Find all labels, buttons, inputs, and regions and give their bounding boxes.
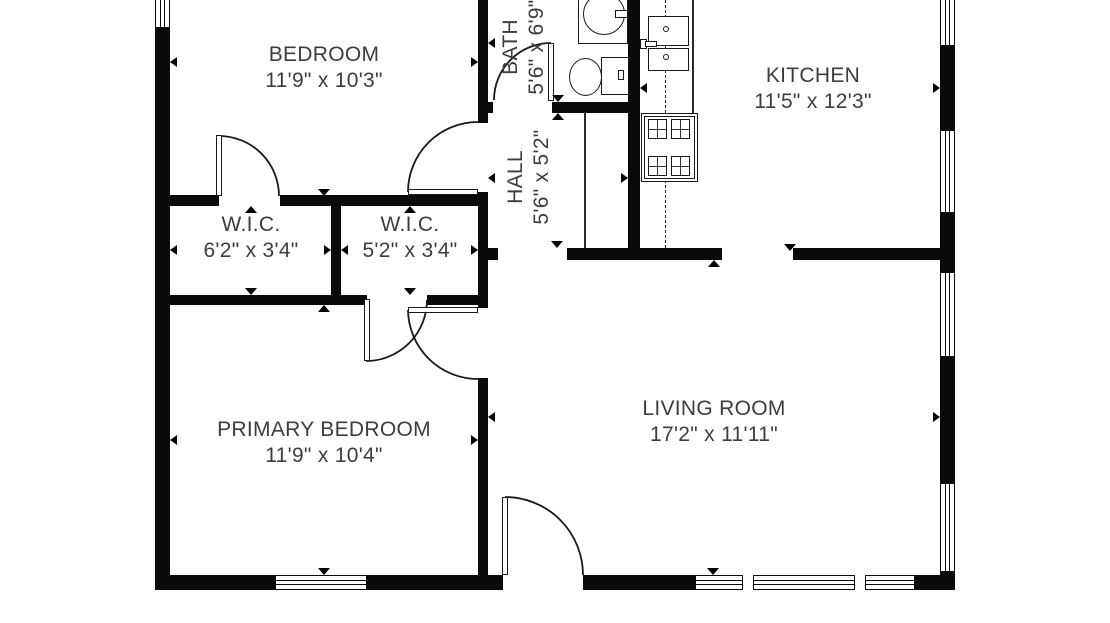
stove-burner-icon xyxy=(671,119,690,139)
sink-drain-icon xyxy=(663,54,669,60)
dimension-arrow-icon xyxy=(551,241,563,248)
wall-bedroom-hall xyxy=(478,192,488,308)
dimension-arrow-icon xyxy=(170,57,177,67)
wall-bath-bottom xyxy=(552,102,640,113)
room-name: PRIMARY BEDROOM xyxy=(217,417,431,443)
room-dims: 5'6" x 5'2" xyxy=(529,129,555,224)
dimension-arrow-icon xyxy=(318,305,330,312)
floor-plan: BEDROOM 11'9" x 10'3" BATH 5'6" x 6'9" K… xyxy=(0,0,1110,623)
wall-right xyxy=(940,357,955,483)
room-label-hall: HALL 5'6" x 5'2" xyxy=(503,129,555,224)
wall-right xyxy=(940,46,955,130)
door-leaf xyxy=(408,189,478,195)
wall-living-top xyxy=(793,248,940,260)
faucet-icon xyxy=(615,10,628,18)
dimension-arrow-icon xyxy=(933,83,940,93)
room-dims: 11'5" x 12'3" xyxy=(754,89,872,115)
dimension-arrow-icon xyxy=(707,568,719,575)
dimension-arrow-icon xyxy=(552,95,564,102)
room-dims: 11'9" x 10'3" xyxy=(265,68,383,94)
dimension-arrow-icon xyxy=(324,245,331,255)
dimension-arrow-icon xyxy=(708,260,720,267)
wall-bottom xyxy=(915,575,955,590)
room-label-wic-right: W.I.C. 5'2" x 3'4" xyxy=(362,212,457,264)
stove-burner-icon xyxy=(648,156,667,176)
dimension-arrow-icon xyxy=(471,435,478,445)
wall-left xyxy=(155,28,170,590)
window xyxy=(940,483,955,572)
room-name: BATH xyxy=(498,0,524,95)
room-dims: 11'9" x 10'4" xyxy=(217,443,431,469)
wall-bath-kitchen xyxy=(628,0,640,260)
sink-drain-icon xyxy=(663,26,669,32)
dimension-arrow-icon xyxy=(621,173,628,183)
dimension-arrow-icon xyxy=(471,57,478,67)
room-label-bath: BATH 5'6" x 6'9" xyxy=(498,0,550,95)
door-arc xyxy=(408,310,478,379)
room-name: W.I.C. xyxy=(203,212,298,238)
room-dims: 17'2" x 11'11" xyxy=(642,422,785,448)
room-label-primary-bedroom: PRIMARY BEDROOM 11'9" x 10'4" xyxy=(217,417,431,469)
room-label-living-room: LIVING ROOM 17'2" x 11'11" xyxy=(642,396,785,448)
dimension-arrow-icon xyxy=(404,288,416,295)
dimension-arrow-icon xyxy=(488,173,495,183)
door-leaf xyxy=(364,299,370,361)
toilet-flush-icon xyxy=(618,70,624,80)
kitchen-sink-icon xyxy=(648,48,689,71)
window xyxy=(155,0,170,28)
room-name: KITCHEN xyxy=(754,63,872,89)
toilet-icon xyxy=(569,58,602,96)
wall-right xyxy=(940,213,955,272)
window xyxy=(940,0,955,46)
faucet-icon xyxy=(645,41,657,47)
room-label-kitchen: KITCHEN 11'5" x 12'3" xyxy=(754,63,872,115)
room-name: BEDROOM xyxy=(265,42,383,68)
dimension-arrow-icon xyxy=(640,83,647,93)
window xyxy=(940,272,955,357)
dimension-arrow-icon xyxy=(170,435,177,445)
dimension-arrow-icon xyxy=(552,113,564,120)
room-name: LIVING ROOM xyxy=(642,396,785,422)
room-label-wic-left: W.I.C. 6'2" x 3'4" xyxy=(203,212,298,264)
stove-burner-icon xyxy=(671,156,690,176)
window xyxy=(695,575,743,590)
door-leaf xyxy=(408,307,478,313)
wall-bottom xyxy=(155,575,275,590)
door-arc xyxy=(408,122,478,192)
door-arc xyxy=(219,136,279,196)
dimension-arrow-icon xyxy=(170,245,177,255)
wall-bottom xyxy=(367,575,503,590)
room-dims: 6'2" x 3'4" xyxy=(203,238,298,264)
dimension-arrow-icon xyxy=(488,38,495,48)
door-arc xyxy=(505,497,583,575)
room-dims: 5'6" x 6'9" xyxy=(524,0,550,95)
wall-wic-divider xyxy=(331,195,341,305)
toilet-tank-icon xyxy=(601,57,629,95)
dimension-arrow-icon xyxy=(471,245,478,255)
wall-bath-bottom xyxy=(478,102,493,113)
wall-living-top xyxy=(567,248,722,260)
dimension-arrow-icon xyxy=(245,288,257,295)
dimension-arrow-icon xyxy=(488,412,495,422)
window xyxy=(275,575,367,590)
window xyxy=(753,575,855,590)
wall-wic-bottom xyxy=(155,295,367,305)
hall-partition-line xyxy=(584,113,586,248)
room-name: HALL xyxy=(503,129,529,224)
dimension-arrow-icon xyxy=(318,189,330,196)
door-leaf xyxy=(216,135,222,196)
dimension-arrow-icon xyxy=(784,244,796,251)
dimension-arrow-icon xyxy=(318,568,330,575)
wall-living-top xyxy=(488,248,498,260)
stove-burner-icon xyxy=(648,119,667,139)
room-dims: 5'2" x 3'4" xyxy=(362,238,457,264)
wall-bottom xyxy=(583,575,695,590)
dimension-arrow-icon xyxy=(933,412,940,422)
wall-wic-top xyxy=(155,195,219,206)
dimension-arrow-icon xyxy=(341,245,348,255)
door-leaf xyxy=(502,497,508,575)
wall-wic-top xyxy=(280,195,488,206)
room-label-bedroom: BEDROOM 11'9" x 10'3" xyxy=(265,42,383,94)
window xyxy=(940,130,955,213)
room-name: W.I.C. xyxy=(362,212,457,238)
counter-edge-line xyxy=(692,0,694,113)
window xyxy=(865,575,915,590)
wall-wic-bottom xyxy=(427,295,488,305)
wall-primary-living xyxy=(478,378,488,575)
